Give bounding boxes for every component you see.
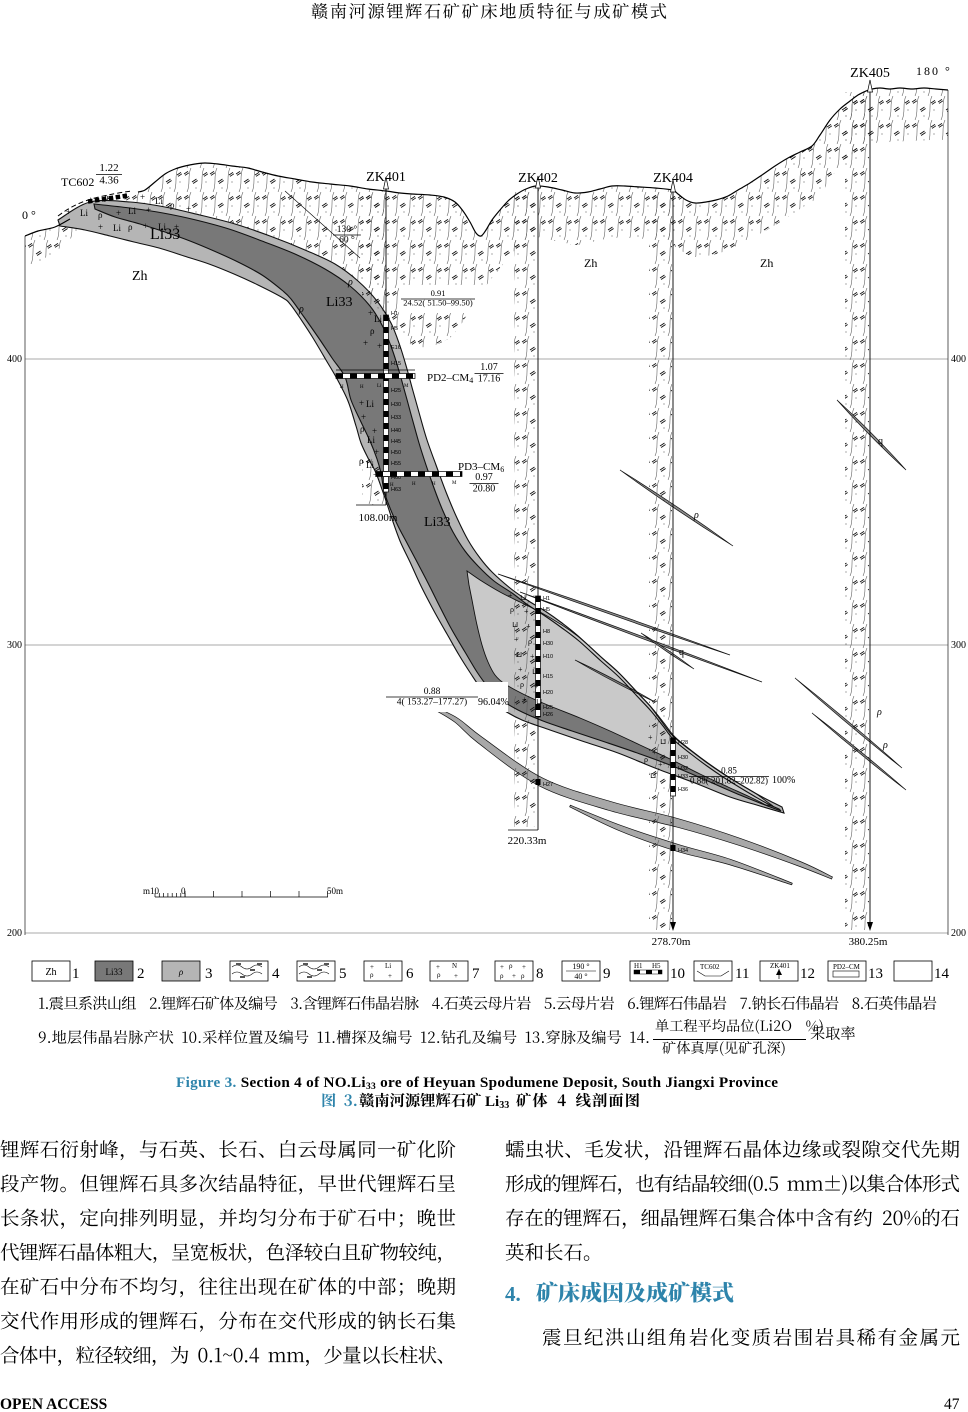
svg-text:300: 300 <box>7 640 22 651</box>
svg-text:0 °: 0 ° <box>22 208 36 222</box>
svg-text:+: + <box>514 635 519 644</box>
svg-text:+: + <box>88 195 93 205</box>
svg-text:ρ: ρ <box>693 510 699 521</box>
svg-text:H: H <box>412 482 416 487</box>
svg-text:H5: H5 <box>543 607 550 613</box>
svg-text:Zh: Zh <box>584 256 597 270</box>
svg-text:+: + <box>530 652 535 661</box>
svg-text:ρ: ρ <box>370 971 374 979</box>
svg-text:12: 12 <box>800 966 815 982</box>
svg-text:⊔: ⊔ <box>650 771 656 780</box>
svg-text:96.04%: 96.04% <box>478 697 509 708</box>
svg-text:+: + <box>377 341 382 351</box>
svg-text:m10: m10 <box>143 886 160 896</box>
svg-text:q: q <box>679 647 684 658</box>
svg-text:H: H <box>390 483 394 488</box>
svg-text:400: 400 <box>951 354 966 365</box>
svg-text:+: + <box>143 221 148 231</box>
svg-text:0.85: 0.85 <box>721 765 737 775</box>
svg-text:9: 9 <box>603 966 611 982</box>
svg-text:H10: H10 <box>543 654 553 660</box>
svg-text:180 °: 180 ° <box>916 64 952 78</box>
svg-text:ρ: ρ <box>359 456 364 466</box>
svg-text:0.91: 0.91 <box>431 288 446 298</box>
svg-text:ρ: ρ <box>98 210 103 220</box>
svg-text:ZK405: ZK405 <box>850 66 890 81</box>
svg-text:ρ: ρ <box>128 222 133 232</box>
svg-text:0: 0 <box>181 886 186 896</box>
svg-text:Zh: Zh <box>45 967 56 978</box>
svg-text:+: + <box>98 222 103 232</box>
svg-text:H32: H32 <box>678 766 688 772</box>
svg-text:2: 2 <box>137 966 145 982</box>
svg-text:ρ: ρ <box>437 971 441 979</box>
svg-text:H26: H26 <box>543 712 553 718</box>
svg-text:H50: H50 <box>391 450 401 456</box>
svg-text:+: + <box>522 695 527 704</box>
svg-text:TC602: TC602 <box>61 175 94 189</box>
svg-text:200: 200 <box>951 928 966 939</box>
svg-text:1: 1 <box>72 966 80 982</box>
svg-text:H: H <box>340 385 344 390</box>
svg-text:H1: H1 <box>634 962 643 970</box>
svg-text:ZK402: ZK402 <box>518 171 558 186</box>
svg-text:+: + <box>524 607 529 616</box>
svg-text:H34: H34 <box>678 848 688 854</box>
svg-text:⊔: ⊔ <box>660 737 666 746</box>
svg-text:108.00m: 108.00m <box>359 512 398 524</box>
svg-text:+: + <box>363 338 368 348</box>
svg-text:ρ: ρ <box>521 972 525 980</box>
svg-text:14: 14 <box>934 966 950 982</box>
svg-text:6: 6 <box>406 966 414 982</box>
svg-text:Li: Li <box>366 399 374 409</box>
svg-text:+: + <box>174 222 179 232</box>
svg-text:Li: Li <box>113 223 121 233</box>
svg-text:H15: H15 <box>543 674 553 680</box>
svg-text:+: + <box>146 205 151 215</box>
svg-text:H30: H30 <box>543 641 553 647</box>
svg-text:ZK401: ZK401 <box>770 962 790 970</box>
svg-text:+: + <box>522 963 526 971</box>
svg-text:Zh: Zh <box>132 269 148 284</box>
svg-text:ρ: ρ <box>876 707 882 718</box>
svg-text:ρ: ρ <box>104 192 109 202</box>
svg-text:380.25m: 380.25m <box>849 936 888 948</box>
svg-text:50m: 50m <box>327 886 343 896</box>
svg-text:17.16: 17.16 <box>478 374 501 385</box>
svg-text:ρ: ρ <box>178 967 184 977</box>
svg-text:+: + <box>658 760 663 769</box>
svg-text:1.22: 1.22 <box>99 162 118 174</box>
svg-text:47: 47 <box>944 1396 960 1412</box>
svg-text:0.97: 0.97 <box>475 472 493 483</box>
svg-text:H15: H15 <box>391 361 401 367</box>
svg-text:H55: H55 <box>391 461 401 467</box>
svg-text:M: M <box>404 384 409 389</box>
svg-text:278.70m: 278.70m <box>652 936 691 948</box>
svg-text:PD2–CM4: PD2–CM4 <box>427 372 473 385</box>
svg-text:1.07: 1.07 <box>480 362 498 373</box>
svg-text:Li: Li <box>80 208 88 218</box>
svg-text:+: + <box>526 622 531 631</box>
svg-text:4.: 4. <box>505 1282 521 1306</box>
svg-text:H: H <box>360 385 364 390</box>
svg-text:H27: H27 <box>543 782 553 788</box>
svg-text:H33: H33 <box>391 415 401 421</box>
svg-text:13: 13 <box>868 966 883 982</box>
svg-text:0.88: 0.88 <box>424 687 441 697</box>
svg-text:8: 8 <box>536 966 544 982</box>
svg-text:+: + <box>361 412 366 422</box>
svg-text:+: + <box>500 963 504 971</box>
svg-text:M: M <box>452 481 457 486</box>
svg-text:Li33: Li33 <box>424 515 450 530</box>
svg-text:Li: Li <box>374 314 382 324</box>
svg-text:+: + <box>116 208 121 218</box>
svg-text:Li: Li <box>366 460 374 470</box>
svg-text:100%: 100% <box>772 775 795 786</box>
svg-text:ρ: ρ <box>520 680 524 689</box>
svg-text:+: + <box>508 591 513 600</box>
svg-text:ρ: ρ <box>882 740 888 751</box>
svg-text:0.88( 201.82–202.82): 0.88( 201.82–202.82) <box>690 776 768 786</box>
svg-text:H5: H5 <box>391 326 398 332</box>
svg-text:+: + <box>359 398 364 408</box>
svg-text:+: + <box>518 665 523 674</box>
svg-text:+: + <box>652 748 657 757</box>
svg-text:Li33: Li33 <box>106 967 123 977</box>
svg-text:Li: Li <box>385 962 391 970</box>
svg-text:4: 4 <box>272 966 280 982</box>
svg-text:+: + <box>368 308 373 318</box>
svg-text:N: N <box>452 962 457 970</box>
svg-text:7: 7 <box>472 966 480 982</box>
svg-text:H20: H20 <box>543 690 553 696</box>
svg-text:60 °: 60 ° <box>339 235 355 246</box>
svg-text:+: + <box>373 470 378 480</box>
svg-text:ρ: ρ <box>528 637 532 646</box>
svg-text:q: q <box>878 436 883 447</box>
svg-text:ρ: ρ <box>298 304 304 315</box>
svg-text:PD2–CM: PD2–CM <box>833 963 861 971</box>
svg-text:ρ: ρ <box>347 277 353 288</box>
svg-text:OPEN ACCESS: OPEN ACCESS <box>0 1396 107 1412</box>
svg-text:H28: H28 <box>678 740 688 746</box>
svg-text:130 °: 130 ° <box>337 224 358 235</box>
svg-text:H25: H25 <box>543 705 553 711</box>
svg-text:⊔: ⊔ <box>516 650 522 659</box>
svg-text:H40: H40 <box>391 428 401 434</box>
svg-text:Zh: Zh <box>760 256 773 270</box>
svg-text:H: H <box>432 482 436 487</box>
svg-text:ρ: ρ <box>510 605 514 614</box>
svg-text:H1: H1 <box>543 596 550 602</box>
svg-text:H1: H1 <box>391 311 398 317</box>
svg-text:⊔: ⊔ <box>532 667 538 676</box>
svg-text:Figure 3. Section 4 of NO.Li33: Figure 3. Section 4 of NO.Li33 ore of He… <box>176 1074 778 1092</box>
svg-text:11: 11 <box>735 966 749 982</box>
svg-text:H33: H33 <box>678 774 688 780</box>
svg-text:+: + <box>140 192 145 202</box>
svg-text:4( 153.27–177.27): 4( 153.27–177.27) <box>397 697 467 708</box>
svg-text:ρ: ρ <box>509 962 513 970</box>
svg-text:H36: H36 <box>678 787 688 793</box>
svg-text:+: + <box>454 972 458 980</box>
svg-text:Li: Li <box>367 435 375 445</box>
svg-text:+: + <box>186 204 191 214</box>
svg-text:+: + <box>66 207 71 217</box>
svg-text:TC602: TC602 <box>700 963 720 971</box>
svg-text:+: + <box>388 972 392 980</box>
svg-text:10: 10 <box>670 966 685 982</box>
svg-text:Li33: Li33 <box>485 1094 509 1111</box>
svg-text:H25: H25 <box>391 388 401 394</box>
svg-text:3: 3 <box>205 966 213 982</box>
svg-text:ρ: ρ <box>644 755 648 764</box>
svg-text:H45: H45 <box>391 439 401 445</box>
svg-text:Li: Li <box>158 222 166 232</box>
svg-text:Li: Li <box>155 196 163 206</box>
svg-text:ZK404: ZK404 <box>653 171 693 186</box>
svg-text:40 °: 40 ° <box>574 972 587 981</box>
svg-text:+: + <box>370 963 374 971</box>
svg-text:ZK401: ZK401 <box>366 170 406 185</box>
svg-text:+: + <box>374 447 379 457</box>
svg-text:ρ: ρ <box>500 972 504 980</box>
svg-text:⊔: ⊔ <box>536 697 542 706</box>
svg-text:220.33m: 220.33m <box>508 835 547 847</box>
svg-text:ρ: ρ <box>170 200 175 210</box>
svg-text:H30: H30 <box>391 402 401 408</box>
svg-text:+: + <box>648 733 653 742</box>
svg-text:+: + <box>512 972 516 980</box>
svg-text:ρ: ρ <box>360 424 365 434</box>
svg-text:Li: Li <box>377 384 382 389</box>
svg-text:H30: H30 <box>678 755 688 761</box>
svg-text:⊔: ⊔ <box>520 593 526 602</box>
svg-text:200: 200 <box>7 928 22 939</box>
svg-text:+: + <box>436 963 440 971</box>
svg-text:24.52( 51.50–99.50): 24.52( 51.50–99.50) <box>403 298 473 308</box>
svg-text:ρ: ρ <box>370 326 375 336</box>
svg-text:+: + <box>534 682 539 691</box>
svg-text:H5: H5 <box>652 962 661 970</box>
svg-text:300: 300 <box>951 640 966 651</box>
svg-text:Li33: Li33 <box>326 295 352 310</box>
svg-text:⊔: ⊔ <box>512 620 518 629</box>
svg-text:E16: E16 <box>391 345 401 351</box>
svg-text:20.80: 20.80 <box>473 484 496 495</box>
svg-text:4.36: 4.36 <box>99 174 119 186</box>
svg-text:190 °: 190 ° <box>572 962 589 971</box>
svg-text:Li: Li <box>128 206 136 216</box>
svg-text:5: 5 <box>339 966 347 982</box>
svg-text:H8: H8 <box>543 629 550 635</box>
svg-text:400: 400 <box>7 354 22 365</box>
